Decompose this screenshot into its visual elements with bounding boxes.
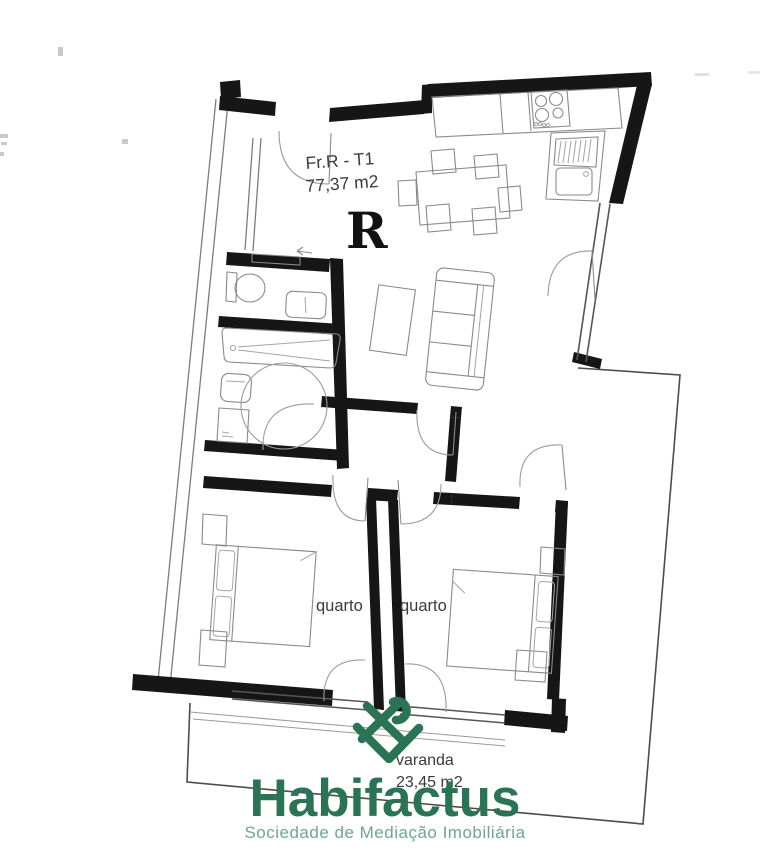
chair — [426, 204, 451, 232]
doors — [252, 131, 595, 712]
outer-walls — [158, 99, 261, 686]
bedroom1-furniture — [199, 514, 316, 667]
nightstand — [202, 514, 227, 546]
coffee-table — [370, 285, 416, 356]
bedroom2-label: quarto — [400, 597, 447, 615]
sofa-icon — [425, 267, 495, 390]
bathtub-icon — [222, 328, 340, 368]
brand-name: Habifactus — [250, 769, 521, 828]
kitchen-counter — [432, 88, 622, 137]
washbasin-icon — [285, 291, 326, 319]
heart-ribbon-icon — [357, 701, 419, 759]
room-letter: R — [346, 201, 388, 260]
kitchen-sink-icon — [556, 168, 592, 195]
turning-circle — [241, 363, 327, 449]
drainer-icon — [554, 137, 598, 167]
toilet-icon — [226, 272, 265, 302]
nightstand — [199, 630, 227, 667]
chair — [498, 186, 522, 212]
floor-plan-page: Fr.R - T1 77,37 m2 R quarto quarto varan… — [0, 0, 783, 854]
washing-machine-icon — [217, 408, 249, 443]
kitchen-fixtures — [432, 88, 622, 201]
cooktop-icon — [531, 90, 570, 128]
living-furniture — [370, 267, 495, 390]
bidet-icon — [220, 373, 252, 403]
brand-tagline: Sociedade de Mediação Imobiliária — [244, 823, 525, 842]
bathroom-fixtures — [217, 272, 340, 449]
balcony-label: varanda — [396, 752, 454, 769]
unit-label: Fr.R - T1 — [305, 148, 375, 173]
bed-icon — [447, 569, 559, 673]
dining-set — [398, 149, 522, 235]
bed-icon — [210, 545, 316, 647]
bedroom2-furniture — [447, 547, 565, 682]
bedroom1-label: quarto — [316, 597, 363, 615]
chair — [398, 180, 417, 206]
floor-plan-drawing: Fr.R - T1 77,37 m2 R quarto quarto varan… — [0, 0, 783, 854]
nightstand — [515, 650, 547, 682]
brand-watermark: Habifactus Sociedade de Mediação Imobili… — [244, 701, 525, 842]
unit-area-label: 77,37 m2 — [305, 171, 379, 196]
slide-direction-arrow-icon — [297, 247, 312, 255]
